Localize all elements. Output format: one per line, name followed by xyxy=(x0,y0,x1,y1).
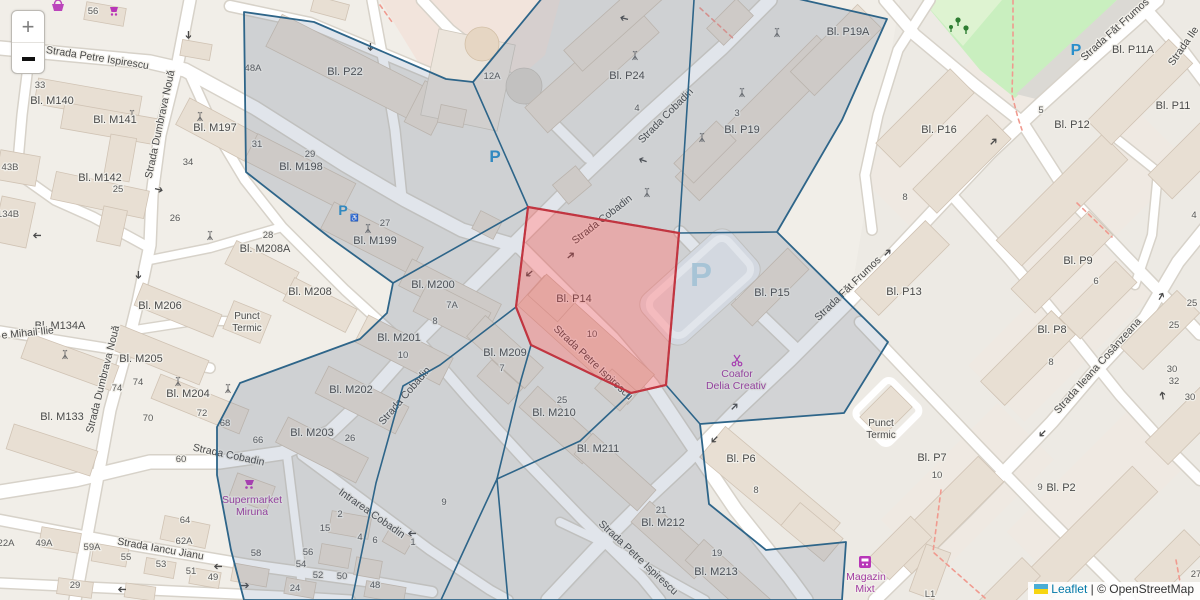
svg-text:Bl. P13: Bl. P13 xyxy=(886,286,921,298)
svg-text:Bl. P16: Bl. P16 xyxy=(921,124,956,136)
svg-text:Bl. P2: Bl. P2 xyxy=(1046,482,1075,494)
svg-text:10: 10 xyxy=(932,470,943,481)
svg-text:33: 33 xyxy=(35,80,46,91)
svg-text:Punct: Punct xyxy=(234,311,260,322)
svg-text:9: 9 xyxy=(1037,482,1042,493)
svg-text:Bl. M197: Bl. M197 xyxy=(193,122,236,134)
svg-text:Termic: Termic xyxy=(866,430,895,441)
svg-text:Bl. P11A: Bl. P11A xyxy=(1112,44,1155,56)
svg-text:56: 56 xyxy=(88,6,99,17)
svg-text:➔: ➔ xyxy=(132,270,144,279)
svg-text:Termic: Termic xyxy=(232,323,261,334)
svg-text:Magazin: Magazin xyxy=(846,571,886,583)
svg-text:74: 74 xyxy=(112,383,123,394)
svg-text:72: 72 xyxy=(197,408,208,419)
svg-text:L1: L1 xyxy=(925,589,936,600)
svg-text:49A: 49A xyxy=(36,538,54,549)
svg-text:Bl. P8: Bl. P8 xyxy=(1037,324,1066,336)
svg-text:Mixt: Mixt xyxy=(855,583,874,595)
svg-text:29: 29 xyxy=(70,580,81,591)
svg-text:26: 26 xyxy=(170,213,181,224)
svg-text:Bl. M205: Bl. M205 xyxy=(119,353,162,365)
svg-text:34: 34 xyxy=(183,157,194,168)
svg-text:60: 60 xyxy=(176,454,187,465)
svg-text:Bl. M204: Bl. M204 xyxy=(166,388,209,400)
svg-text:Bl. M141: Bl. M141 xyxy=(93,114,136,126)
svg-text:30: 30 xyxy=(1185,392,1196,403)
svg-text:Bl. P7: Bl. P7 xyxy=(917,452,946,464)
svg-text:4: 4 xyxy=(1191,210,1196,221)
svg-text:Bl. M206: Bl. M206 xyxy=(138,300,181,312)
svg-text:25: 25 xyxy=(1187,298,1198,309)
svg-text:Bl. M208: Bl. M208 xyxy=(288,286,331,298)
svg-text:Bl. P9: Bl. P9 xyxy=(1063,255,1092,267)
svg-text:64: 64 xyxy=(180,515,191,526)
svg-text:Bl. M208A: Bl. M208A xyxy=(240,243,291,255)
svg-text:32: 32 xyxy=(1169,376,1180,387)
svg-text:49: 49 xyxy=(208,572,219,583)
svg-text:43B: 43B xyxy=(2,162,19,173)
svg-text:Bl. P12: Bl. P12 xyxy=(1054,119,1089,131)
svg-text:8: 8 xyxy=(902,192,907,203)
svg-text:53: 53 xyxy=(156,559,167,570)
svg-text:Bl. M140: Bl. M140 xyxy=(30,95,73,107)
svg-text:➔: ➔ xyxy=(213,560,222,572)
svg-text:8: 8 xyxy=(753,485,758,496)
svg-text:➔: ➔ xyxy=(182,30,194,39)
svg-text:Bl. P11: Bl. P11 xyxy=(1156,100,1191,112)
svg-text:5: 5 xyxy=(1038,105,1043,116)
svg-text:➔: ➔ xyxy=(117,583,126,595)
svg-text:27: 27 xyxy=(1191,569,1200,580)
svg-text:Punct: Punct xyxy=(868,418,894,429)
svg-text:74: 74 xyxy=(133,377,144,388)
svg-text:Bl. M133: Bl. M133 xyxy=(40,411,83,423)
svg-text:6: 6 xyxy=(1093,276,1098,287)
svg-text:25: 25 xyxy=(1169,320,1180,331)
svg-text:55: 55 xyxy=(121,552,132,563)
svg-text:25: 25 xyxy=(113,184,124,195)
svg-text:➔: ➔ xyxy=(32,229,41,241)
svg-text:8: 8 xyxy=(1048,357,1053,368)
svg-text:Bl. P6: Bl. P6 xyxy=(726,453,755,465)
svg-text:Bl. M142: Bl. M142 xyxy=(78,172,121,184)
svg-text:28: 28 xyxy=(263,230,274,241)
svg-text:134B: 134B xyxy=(0,209,19,220)
svg-text:22A: 22A xyxy=(0,538,15,549)
svg-text:30: 30 xyxy=(1167,364,1178,375)
svg-text:70: 70 xyxy=(143,413,154,424)
svg-text:59A: 59A xyxy=(84,542,102,553)
svg-text:51: 51 xyxy=(186,566,197,577)
